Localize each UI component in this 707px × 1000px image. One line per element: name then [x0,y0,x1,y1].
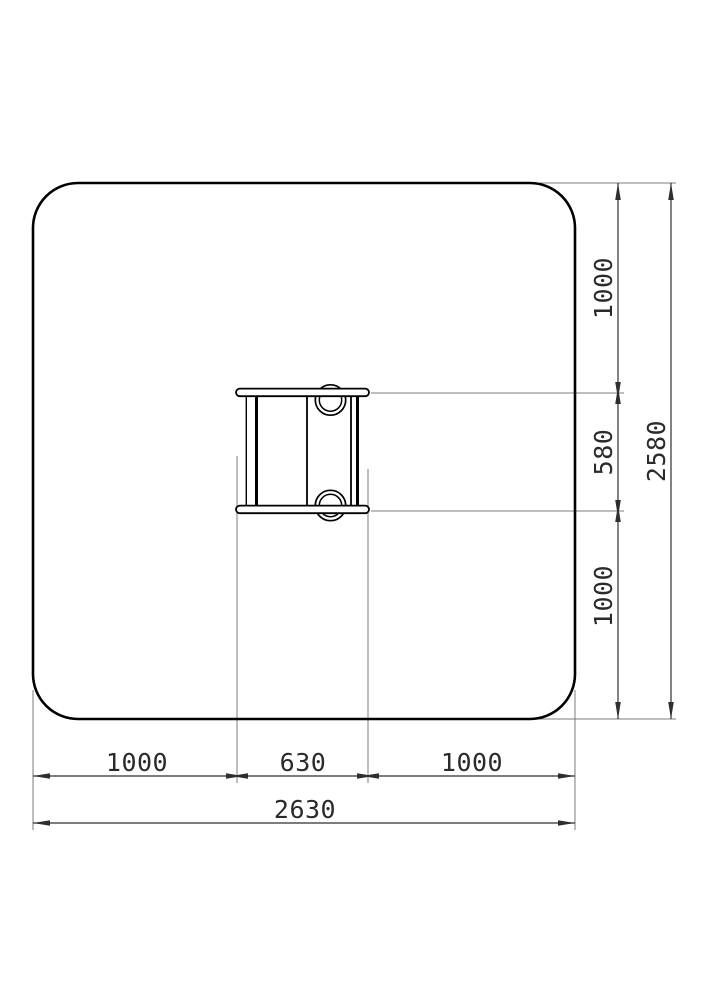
arrowhead-up [615,387,621,404]
outer-boundary-outline [33,183,575,719]
arrowhead-up [615,183,621,200]
arrowhead-right [558,773,575,779]
arrowhead-left [362,773,379,779]
dim-label-vertical-top: 1000 [589,257,618,319]
dim-label-horizontal-right: 1000 [441,748,503,777]
equipment-top-rail [236,389,369,397]
technical-drawing-page: 1000 580 1000 2580 1000 630 1000 2630 [0,0,707,1000]
dim-label-vertical-total: 2580 [642,420,671,482]
vertical-dimensions: 1000 580 1000 2580 [589,183,674,719]
arrowhead-down [668,702,674,719]
horizontal-dimensions: 1000 630 1000 2630 [33,748,575,826]
arrowhead-right [558,820,575,826]
equipment-top-view [236,385,369,521]
dim-label-horizontal-middle: 630 [280,748,327,777]
arrowhead-down [615,702,621,719]
arrowhead-left [231,773,248,779]
equipment-bottom-rail [236,506,369,514]
arrowhead-left [33,773,50,779]
dim-label-vertical-bottom: 1000 [589,565,618,627]
dim-label-horizontal-total: 2630 [274,795,336,824]
dim-label-horizontal-left: 1000 [106,748,168,777]
arrowhead-left [33,820,50,826]
arrowhead-up [615,505,621,522]
technical-drawing: 1000 580 1000 2580 1000 630 1000 2630 [0,0,707,1000]
dim-label-vertical-middle: 580 [589,429,618,476]
arrowhead-up [668,183,674,200]
